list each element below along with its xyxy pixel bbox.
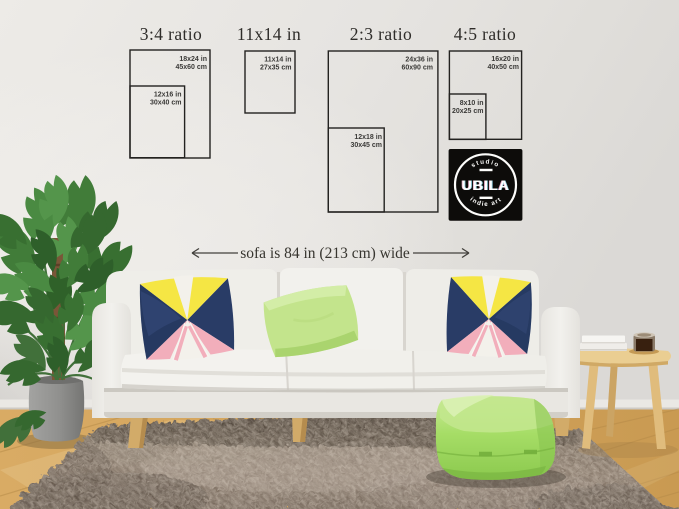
- svg-text:18x24 in: 18x24 in: [179, 56, 207, 63]
- svg-text:45x60 cm: 45x60 cm: [175, 64, 207, 71]
- svg-text:16x20 in: 16x20 in: [491, 56, 519, 63]
- svg-text:30x40 cm: 30x40 cm: [150, 100, 182, 107]
- svg-text:12x18 in: 12x18 in: [354, 134, 382, 141]
- svg-text:8x10 in: 8x10 in: [460, 100, 484, 107]
- svg-text:2:3 ratio: 2:3 ratio: [350, 24, 412, 44]
- svg-text:20x25 cm: 20x25 cm: [452, 108, 484, 115]
- svg-text:11x14 in: 11x14 in: [237, 24, 301, 44]
- svg-text:24x36 in: 24x36 in: [405, 57, 433, 64]
- svg-text:30x45 cm: 30x45 cm: [350, 142, 382, 149]
- svg-text:12x16 in: 12x16 in: [154, 92, 182, 99]
- svg-text:4:5 ratio: 4:5 ratio: [454, 24, 516, 44]
- svg-text:40x50 cm: 40x50 cm: [487, 64, 519, 71]
- svg-text:sofa is 84 in (213 cm) wide: sofa is 84 in (213 cm) wide: [240, 245, 410, 262]
- svg-text:60x90 cm: 60x90 cm: [401, 65, 433, 72]
- svg-text:11x14 in: 11x14 in: [264, 57, 291, 64]
- svg-text:27x35 cm: 27x35 cm: [260, 65, 292, 72]
- svg-text:3:4 ratio: 3:4 ratio: [140, 24, 202, 44]
- svg-text:UBILA: UBILA: [462, 178, 510, 194]
